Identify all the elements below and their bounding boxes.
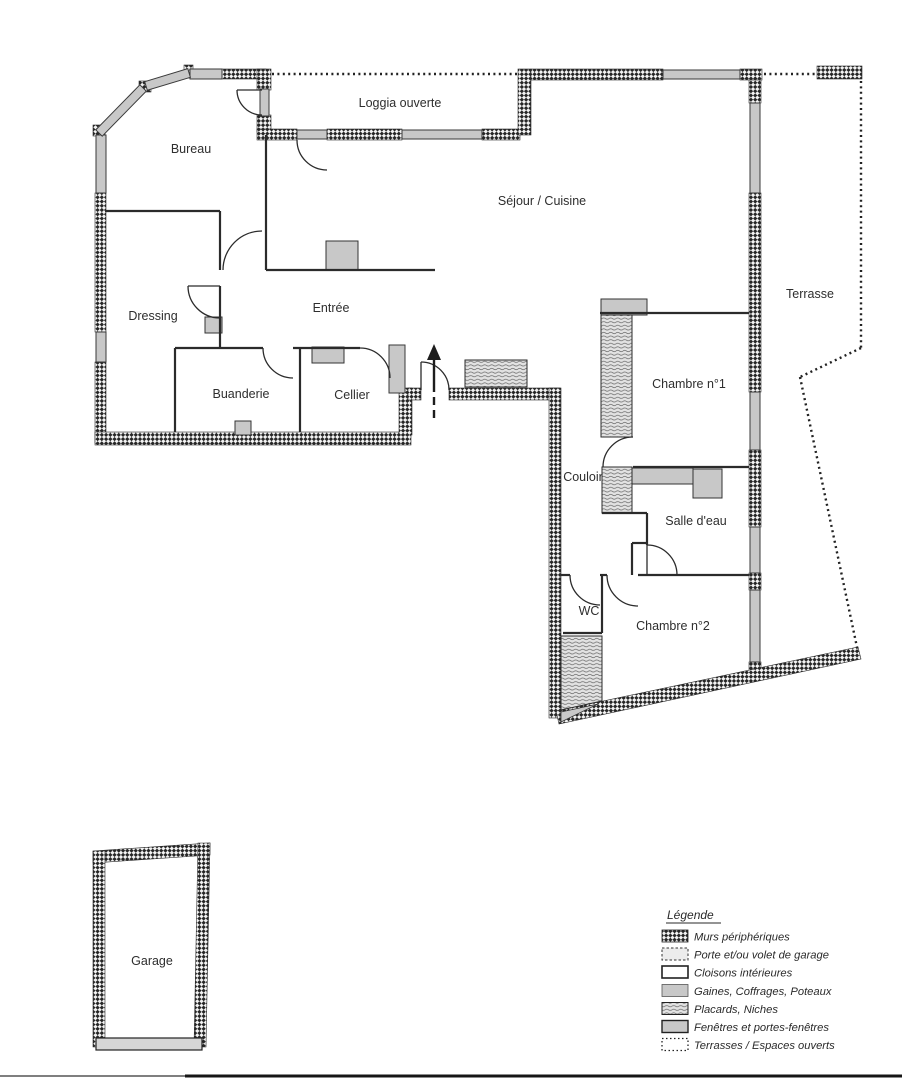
wall-left-1 (95, 193, 106, 332)
garage-wall-left (93, 851, 105, 1047)
legend-swatch-fenetres (662, 1021, 688, 1033)
gaine-salle-deau-square (693, 469, 722, 498)
room-label-salle-eau: Salle d'eau (665, 514, 727, 528)
room-label-buanderie: Buanderie (213, 387, 270, 401)
wall-loggia-right-pier (518, 69, 531, 135)
window-dressing-left (96, 332, 106, 362)
door-bureau (237, 90, 262, 115)
legend-label-fenetres: Fenêtres et portes-fenêtres (694, 1022, 829, 1034)
garage-door (96, 1038, 202, 1050)
window-corner-diag-1 (96, 85, 147, 136)
dotted-terrasse-diag-1 (800, 348, 861, 377)
door-cellier (360, 348, 390, 378)
window-loggia-1 (297, 130, 327, 139)
door-entree-sejour (223, 231, 262, 270)
floor-plan-page: Bureau Loggia ouverte Séjour / Cuisine D… (0, 0, 902, 1080)
window-right-2 (750, 392, 760, 450)
wall-bottom-left (95, 432, 411, 445)
legend-swatch-murs (662, 930, 688, 942)
gaine-cellier (312, 347, 344, 363)
room-label-wc: WC (579, 604, 600, 618)
room-label-chambre2: Chambre n°2 (636, 619, 710, 633)
legend-label-murs: Murs périphériques (694, 932, 790, 944)
door-dressing (188, 286, 220, 318)
legend-swatch-gaines (662, 985, 688, 997)
room-label-garage: Garage (131, 954, 173, 968)
wall-left-2 (95, 362, 106, 443)
wall-loggia-bottom-1 (257, 129, 297, 140)
legend-label-cloisons: Cloisons intérieures (694, 968, 793, 980)
placard-couloir (602, 467, 632, 513)
gaine-buanderie (235, 421, 251, 435)
wall-entrance-south-right (449, 388, 560, 400)
window-right-1 (750, 103, 760, 193)
door-chambre1 (603, 437, 633, 467)
peripheral-walls (93, 65, 862, 724)
wall-loggia-bottom-2 (327, 129, 402, 140)
entrance-arrow-head (427, 344, 441, 360)
placard-entrance (465, 360, 527, 387)
room-label-terrasse: Terrasse (786, 287, 834, 301)
wall-sejour-top-corner (740, 69, 762, 80)
window-bureau-top (190, 69, 222, 79)
window-right-3 (750, 527, 760, 573)
window-corner-vertical (96, 135, 106, 193)
room-label-chambre1: Chambre n°1 (652, 377, 726, 391)
wall-right-4 (749, 573, 761, 590)
legend-swatch-cloisons (662, 966, 688, 978)
room-label-entree: Entrée (313, 301, 350, 315)
window-bureau-loggia-leaf (260, 89, 269, 116)
wall-entrance-south-left (408, 388, 421, 400)
wall-sejour-top (531, 69, 663, 80)
window-cellier-east (389, 345, 405, 393)
legend-swatch-porte (662, 948, 688, 960)
room-label-sejour: Séjour / Cuisine (498, 194, 586, 208)
entrance-arrow (427, 344, 441, 420)
wall-bureau-loggia-upper (257, 69, 271, 90)
placard-chambre1 (601, 315, 632, 437)
floor-plan-drawing: Bureau Loggia ouverte Séjour / Cuisine D… (0, 0, 902, 1080)
door-buanderie (263, 348, 293, 378)
gaine-sejour (326, 241, 358, 270)
legend-swatch-placards (662, 1003, 688, 1015)
garage-structure (93, 843, 210, 1050)
dotted-terrasse-diag-2 (800, 377, 858, 652)
room-labels: Bureau Loggia ouverte Séjour / Cuisine D… (128, 96, 834, 968)
legend-label-porte: Porte et/ou volet de garage (694, 950, 829, 962)
wall-right-2 (749, 193, 761, 392)
room-label-loggia: Loggia ouverte (359, 96, 442, 110)
wall-right-3 (749, 450, 761, 527)
wall-right-1 (749, 80, 761, 103)
windows (96, 69, 760, 662)
window-sejour-top (663, 70, 740, 79)
legend-title: Légende (667, 908, 714, 922)
gaine-salle-deau-bar (632, 468, 693, 484)
window-loggia-2 (402, 130, 482, 139)
room-label-couloir: Couloir (563, 470, 603, 484)
door-salle-deau (647, 545, 677, 575)
wall-terrace-pier (817, 66, 862, 79)
wall-loggia-bottom-3 (482, 129, 520, 140)
door-wc (570, 575, 600, 605)
door-chambre2 (607, 575, 638, 606)
open-space-boundaries (272, 74, 861, 652)
legend: Légende Murs périphériques Porte et/ou v… (662, 908, 835, 1052)
room-label-bureau: Bureau (171, 142, 211, 156)
room-label-dressing: Dressing (128, 309, 177, 323)
legend-swatch-terrasses (662, 1039, 688, 1051)
wall-couloir-west (549, 388, 561, 718)
window-right-4 (750, 590, 760, 662)
legend-label-placards: Placards, Niches (694, 1004, 778, 1016)
legend-label-terrasses: Terrasses / Espaces ouverts (694, 1040, 835, 1052)
door-loggia-sejour (297, 140, 327, 170)
legend-label-gaines: Gaines, Coffrages, Poteaux (694, 986, 832, 998)
window-corner-diag-2 (145, 69, 191, 91)
room-label-cellier: Cellier (334, 388, 369, 402)
garage-wall-right (194, 843, 210, 1047)
garage-wall-top (93, 843, 210, 863)
placard-below-wc (561, 636, 602, 710)
